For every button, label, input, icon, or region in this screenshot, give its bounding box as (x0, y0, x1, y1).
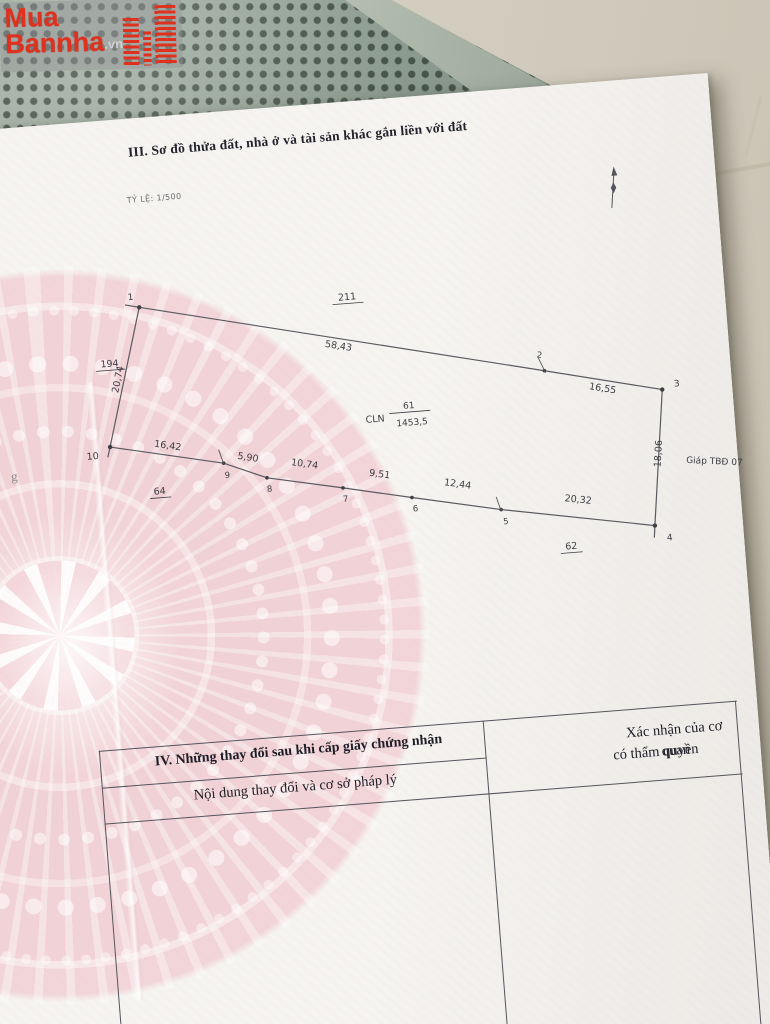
vertex-label: 8 (267, 484, 273, 494)
boundary-note: Giáp TBĐ 07 (686, 456, 743, 468)
tile-grout-line (745, 97, 762, 156)
edge-length: 20,32 (564, 493, 592, 507)
table-border (735, 701, 767, 1024)
edge-length: 16,42 (153, 439, 181, 454)
vertex-label: 4 (667, 533, 674, 543)
parcel-area: 1453,5 (396, 417, 428, 429)
watermark-text: Mua Bannha.vn (4, 2, 123, 69)
parcel-diagram: 1 2 3 4 5 6 7 8 9 10 58,43 16,55 18,06 2… (6, 150, 770, 627)
north-arrow-icon (609, 166, 620, 208)
vertex-label: 2 (536, 350, 543, 361)
vertex-label: 3 (674, 379, 681, 389)
edge-length: 18,06 (652, 440, 665, 468)
vertex-label: 9 (224, 471, 230, 481)
photo-scene: III. Sơ đồ thửa đất, nhà ở và tài sản kh… (0, 0, 770, 1024)
watermark-suffix: .vn (104, 36, 123, 51)
edge-length: 58,43 (324, 339, 353, 354)
edge-length: 12,44 (443, 477, 471, 492)
vertex-label: 10 (86, 451, 99, 463)
watermark-line2: Bannha (5, 27, 105, 60)
edge-length: 5,90 (237, 451, 260, 465)
edge-length: 10,74 (290, 457, 318, 471)
vertex-label: 1 (127, 293, 134, 303)
cutoff-print-glyph: g (10, 468, 18, 484)
watermark: Mua Bannha.vn (0, 0, 183, 72)
parcel-number: 61 (403, 401, 415, 412)
buildings-icon (122, 0, 178, 66)
building-bar-icon (143, 31, 152, 65)
parcel-label: CLN 61 1453,5 (365, 400, 432, 432)
edge-length: 9,51 (368, 468, 390, 482)
land-type-label: CLN (365, 413, 385, 425)
adjacent-parcel-label: 62 (565, 541, 578, 553)
section3-title: III. Sơ đồ thửa đất, nhà ở và tài sản kh… (127, 118, 467, 161)
column-header-confirm: Xác nhận của cơ quan có thẩm quyền (486, 715, 738, 756)
building-bar-icon (154, 5, 177, 66)
vertex-label: 5 (503, 517, 509, 527)
adjacent-parcel-label: 64 (153, 486, 166, 498)
certificate-paper: III. Sơ đồ thửa đất, nhà ở và tài sản kh… (0, 73, 770, 1024)
vertex-label: 7 (343, 495, 349, 505)
section4-table: IV. Những thay đổi sau khi cấp giấy chứn… (99, 701, 768, 1024)
building-bar-icon (122, 18, 139, 66)
vertex-marks (97, 265, 675, 570)
adjacent-parcel-label: 211 (338, 291, 357, 303)
adjacent-parcel-label: 194 (100, 358, 119, 370)
vertex-label: 6 (413, 504, 419, 514)
table-column-divider (483, 721, 515, 1024)
edge-length: 16,55 (588, 381, 617, 396)
